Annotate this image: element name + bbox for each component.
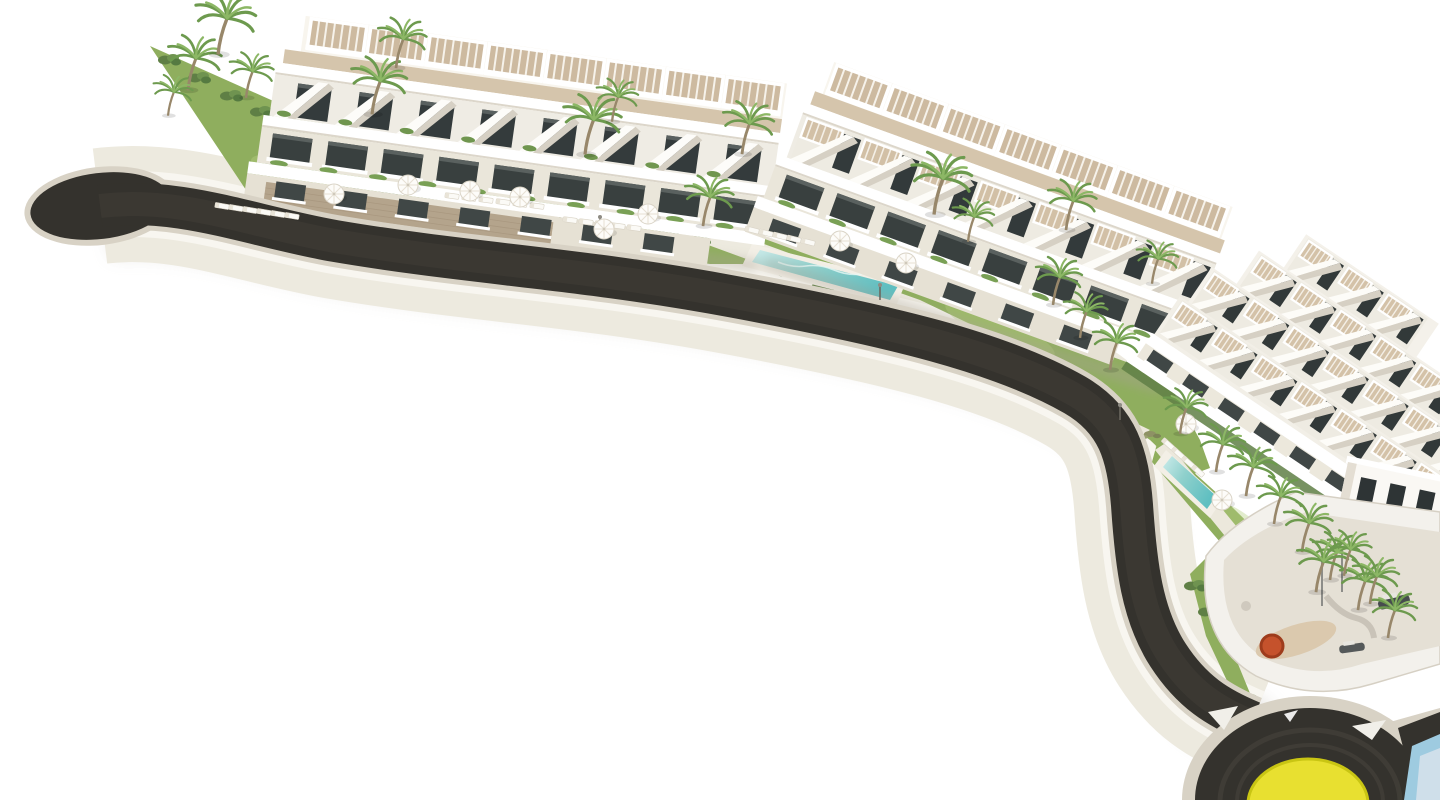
apartment-unit	[335, 83, 402, 133]
apartment-unit	[642, 126, 709, 176]
site-plan-render	[0, 0, 1440, 800]
apartment-unit	[396, 92, 463, 142]
apartment-unit	[273, 75, 340, 125]
apartment-unit	[703, 135, 770, 185]
palm-tree	[196, 0, 256, 58]
render-canvas: Aerial 3D render of a modern white terra…	[0, 0, 1440, 800]
roundabout	[1182, 696, 1440, 800]
apartment-unit	[458, 101, 525, 151]
play-circle	[1261, 635, 1283, 657]
parasol	[1212, 490, 1235, 510]
picnic-table	[1241, 601, 1251, 611]
